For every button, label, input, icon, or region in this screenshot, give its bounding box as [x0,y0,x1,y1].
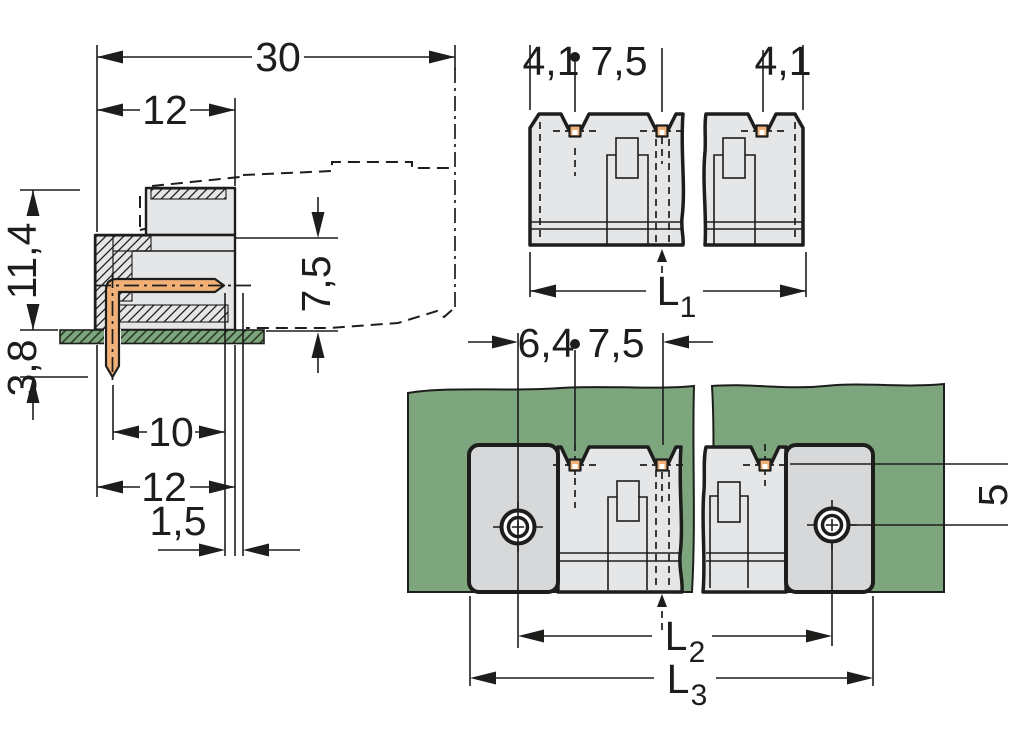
hatch-band-top [151,189,226,199]
header-front-view: 4,1 7,5 4,1 L 1 [523,38,812,324]
dim-mating-face-height: 7,5 [293,256,339,313]
dim-overall-length-L3-sub: 3 [691,679,708,712]
dim-last-pin-to-edge: 4,1 [755,38,812,84]
side-view: 30 12 11,4 3,8 7,5 10 [0,34,455,557]
dim-pin-length-below-pcb: 3,8 [0,340,45,397]
dim-total-length-L1-sub: 1 [680,291,697,324]
dim-overall-length-L3: L [667,656,690,702]
dim-pin-pitch-pcb: 7,5 [588,320,645,366]
dim-screw-spacing-L2: L [665,613,688,659]
dim-total-length-L1: L [657,268,680,314]
pcb-cross-section [60,330,264,344]
header-body-right [704,114,803,245]
dim-screw-to-first-pin: 6,4 [518,320,575,366]
dim-pin-depth: 10 [148,409,194,455]
dim-height-above-pcb: 11,4 [0,223,45,300]
technical-drawing-page: 30 12 11,4 3,8 7,5 10 [0,0,1030,733]
dim-overall-depth: 30 [255,34,301,80]
dim-pin-row-to-screw-axis: 5 [970,484,1016,507]
dim-edge-to-first-pin: 4,1 [523,38,580,84]
pcb-mounting-view: 6,4 7,5 5 L 2 L 3 [408,320,1016,712]
dim-housing-depth: 12 [142,87,188,133]
connector-dimensional-drawing: 30 12 11,4 3,8 7,5 10 [0,0,1030,733]
dim-face-offset: 1,5 [150,498,207,544]
pcb-view-body-right [703,447,786,592]
dim-screw-spacing-L2-sub: 2 [689,636,706,669]
dim-pin-pitch-header: 7,5 [591,38,648,84]
